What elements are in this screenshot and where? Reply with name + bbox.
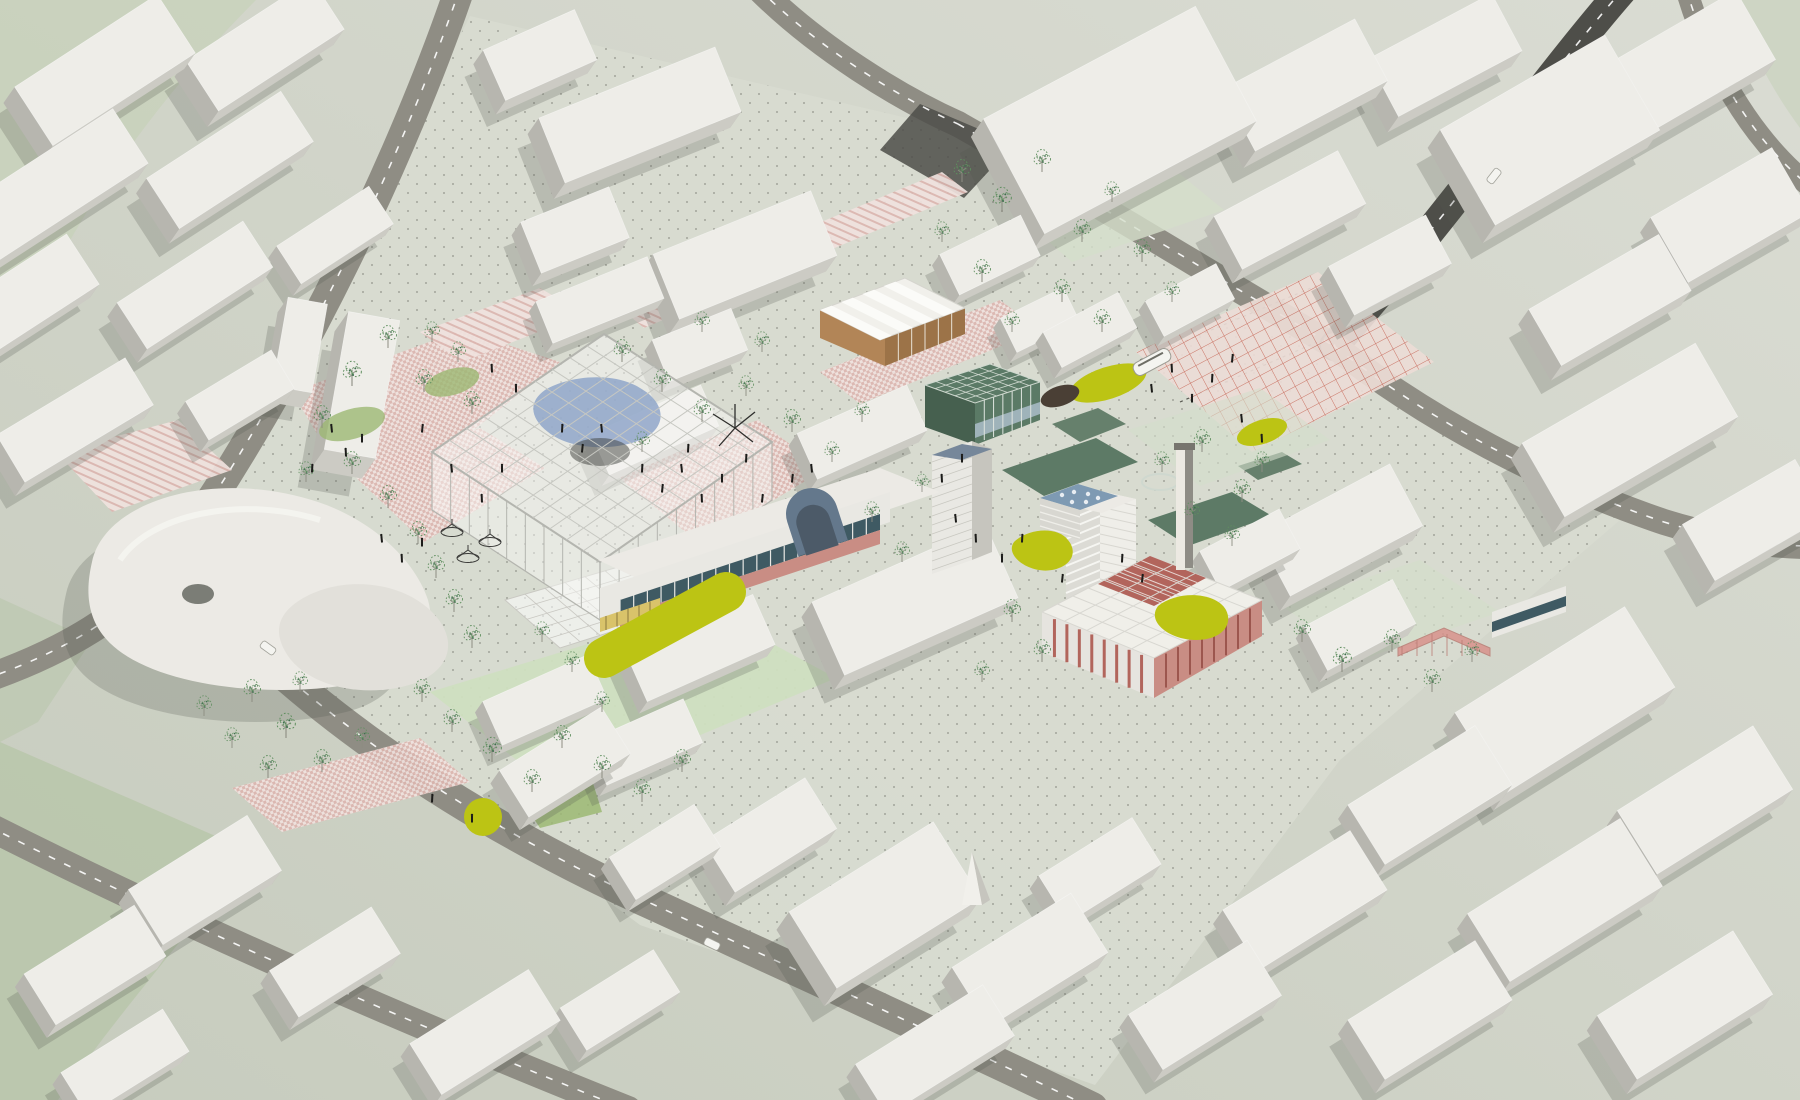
masterplan-render	[0, 0, 1800, 1100]
masterplan-scene-svg	[0, 0, 1800, 1100]
factory-chimney	[1174, 443, 1195, 570]
